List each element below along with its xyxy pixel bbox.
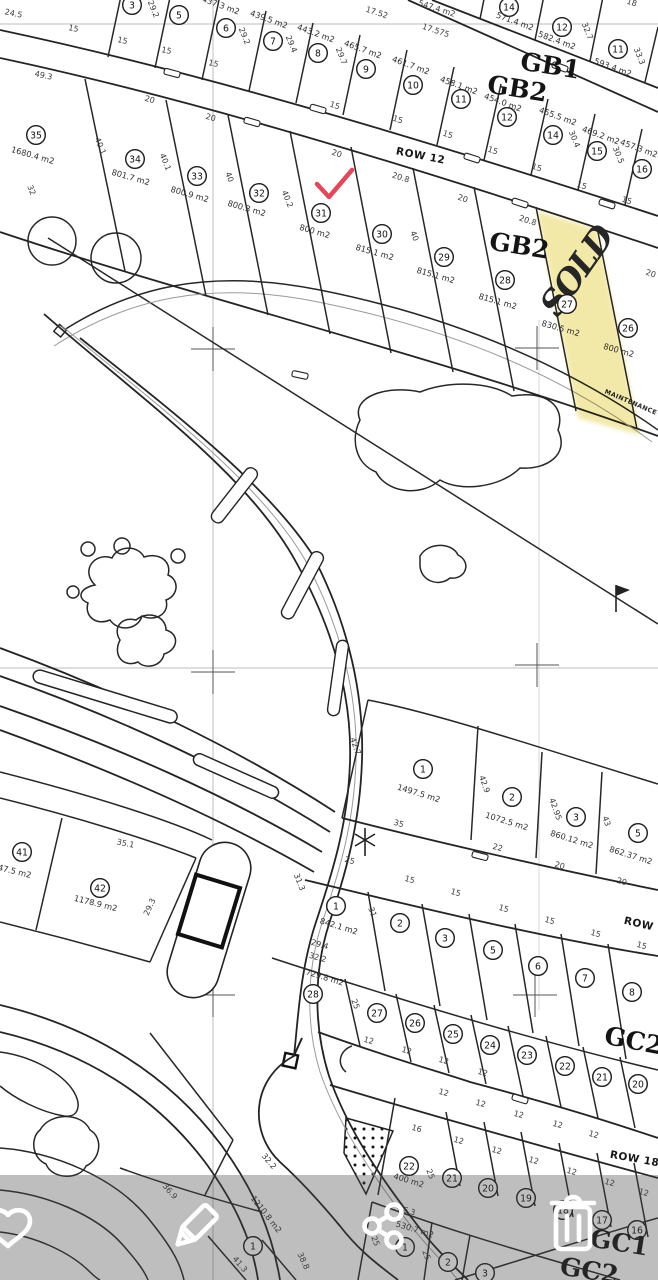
plot-number: 10 <box>407 80 419 91</box>
plot-number: 34 <box>129 154 141 165</box>
dimension-label: 43 <box>600 815 612 828</box>
dimension-label: 18 <box>626 0 638 8</box>
dimension-label: 12 <box>477 1067 489 1078</box>
cadastral-map: SOLD 24.5151515151515151515151549.320202… <box>0 0 658 1280</box>
dimension-label: 15 <box>450 887 462 898</box>
plot-number: 7 <box>582 973 588 984</box>
plot-number: 5 <box>176 10 182 21</box>
plot-area: 815.1 m2 <box>355 242 395 262</box>
dimension-label: 32 <box>25 184 37 197</box>
tree-outline <box>91 233 141 283</box>
dimension-label: 12 <box>438 1055 450 1066</box>
lake-outline <box>355 384 561 491</box>
dimension-label: 12 <box>588 1129 600 1140</box>
plot-number: 28 <box>307 989 319 1000</box>
dimension-label: 30.4 <box>567 129 582 149</box>
power-pole-icon <box>355 828 375 856</box>
plot-number: 8 <box>629 987 635 998</box>
dimension-label: 15 <box>329 100 341 112</box>
plot-number: 9 <box>363 64 369 75</box>
plot-number: 8 <box>315 48 321 59</box>
plot-number: 16 <box>636 164 648 175</box>
plot-number: 15 <box>591 146 603 157</box>
plot-number: 22 <box>559 1061 571 1072</box>
dimension-label: 12 <box>401 1045 413 1056</box>
dimension-label: 12 <box>552 1119 564 1130</box>
toolbar-overlay <box>0 1175 658 1280</box>
plot-number: 35 <box>30 130 42 141</box>
dimension-label: 20 <box>144 94 156 105</box>
dimension-label: 49.3 <box>34 69 53 82</box>
plot-number: 24 <box>484 1040 496 1051</box>
survey-grid <box>0 0 658 1280</box>
block-label: GC2 <box>602 1021 658 1061</box>
dimension-label: 15 <box>590 928 602 939</box>
red-checkmark <box>317 170 352 197</box>
plot-area: 455.5 m2 <box>538 105 578 128</box>
dimension-label: 17.575 <box>421 22 450 39</box>
dimension-label: 15 <box>544 915 556 926</box>
plot-number: 42 <box>94 883 106 894</box>
dimension-label: 40 <box>223 171 235 184</box>
plot-area: 800.9 m2 <box>170 184 210 204</box>
dimension-label: 29.4 <box>284 34 299 54</box>
plot-number: 30 <box>376 229 388 240</box>
plot-area: 862.37 m2 <box>608 844 653 867</box>
plot-number: 25 <box>447 1029 459 1040</box>
plot-number: 33 <box>191 171 203 182</box>
dimension-label: 12 <box>513 1109 525 1120</box>
dimension-label: 20 <box>645 268 657 280</box>
plot-boundaries <box>0 0 658 1280</box>
dimension-label: 15 <box>442 129 454 141</box>
dimension-label: 15 <box>498 903 510 914</box>
plot-number: 1 <box>333 901 339 912</box>
dimension-label: 22 <box>492 842 504 853</box>
plot-number: 5 <box>490 945 496 956</box>
dimension-label: 20 <box>205 112 217 123</box>
plot-number: 3 <box>442 933 448 944</box>
dimension-label: 15 <box>392 114 404 126</box>
plot-number: 28 <box>499 275 511 286</box>
plot-area: 1497.5 m2 <box>396 782 441 805</box>
dimension-label: 12 <box>453 1135 465 1146</box>
plot-area: 437.3 m2 <box>201 0 241 17</box>
lamp-post-icon <box>283 1038 302 1068</box>
dimension-label: 42.9 <box>477 774 492 794</box>
plot-area: 800 m2 <box>298 222 331 240</box>
plot-number: 2 <box>509 792 515 803</box>
plot-number: 26 <box>409 1018 421 1029</box>
plot-number: 7 <box>270 36 276 47</box>
plot-number: 20 <box>632 1079 644 1090</box>
plot-number: 23 <box>521 1050 533 1061</box>
plot-number: 14 <box>547 130 559 141</box>
plot-number: 2 <box>397 918 403 929</box>
dimension-label: 15 <box>404 874 416 885</box>
dimension-label: 40.1 <box>93 136 108 156</box>
plot-area: 457.3 m2 <box>619 137 658 160</box>
dimension-label: 35.1 <box>116 837 135 850</box>
dimension-label: 12 <box>438 1087 450 1098</box>
plot-area: 860.12 m2 <box>549 828 594 851</box>
plot-number: 29 <box>438 252 450 263</box>
plot-number: 26 <box>622 323 634 334</box>
photo-annotation-viewer: SOLD 24.5151515151515151515151549.320202… <box>0 0 658 1280</box>
plot-number: 3 <box>129 0 135 11</box>
plot-number: 12 <box>556 22 568 33</box>
dimension-label: 29.3 <box>142 897 158 917</box>
plot-number: 6 <box>535 961 541 972</box>
plot-number: 11 <box>455 94 467 105</box>
dimension-label: 29.2 <box>146 0 161 19</box>
dimension-label: 20 <box>616 876 628 887</box>
dimension-label: 29.2 <box>237 26 252 46</box>
plot-number: 27 <box>371 1008 383 1019</box>
plot-number: 3 <box>573 812 579 823</box>
map-labels: 24.5151515151515151515151549.32020202020… <box>0 0 658 1280</box>
plot-number: 41 <box>16 847 28 858</box>
dimension-label: 35 <box>393 818 405 829</box>
plot-area: 1680.4 m2 <box>10 144 55 166</box>
dimension-label: 32.2 <box>260 1152 278 1171</box>
dimension-label: 29.7 <box>334 46 349 66</box>
plot-area: 593.4 m2 <box>593 56 633 79</box>
dimension-label: 40.2 <box>280 189 295 209</box>
pond-outline <box>420 545 466 582</box>
plot-area: 47.5 m2 <box>0 862 32 880</box>
plot-number: 21 <box>596 1072 608 1083</box>
dimension-label: 20 <box>457 193 469 205</box>
roads <box>0 0 658 1280</box>
dimension-label: 15 <box>68 23 80 34</box>
dimension-label: 20.8 <box>391 171 411 185</box>
dimension-label: 40 <box>408 230 420 243</box>
dimension-label: 16 <box>411 1123 423 1134</box>
dimension-label: 12 <box>475 1098 487 1109</box>
road-label: ROW 12 <box>395 145 446 166</box>
dimension-label: 25 <box>344 855 356 866</box>
dimension-label: 12 <box>363 1035 375 1046</box>
dimension-label: 20 <box>331 148 343 160</box>
plot-number: 27 <box>561 299 573 310</box>
dimension-label: 31 <box>366 906 378 919</box>
dimension-label: 42.95 <box>547 797 563 822</box>
dimension-label: 15 <box>161 45 173 56</box>
bush-cluster <box>67 538 185 666</box>
plot-area: 465.7 m2 <box>343 38 383 61</box>
road-median <box>192 752 281 800</box>
plot-area: 439.5 m2 <box>249 8 289 31</box>
dimension-label: 31.3 <box>292 872 307 892</box>
plot-area: 842.1 m2 <box>319 916 359 937</box>
plot-area: 1072.5 m2 <box>484 810 529 833</box>
dimension-label: 40.1 <box>158 152 173 172</box>
plot-number: 12 <box>501 112 513 123</box>
road-label: ROW <box>623 915 655 933</box>
dimension-label: 15 <box>208 58 220 69</box>
plot-number: 11 <box>612 44 624 55</box>
dimension-label: 17.52 <box>364 5 389 21</box>
plot-number: 1 <box>420 764 426 775</box>
plot-number: 22 <box>403 1161 415 1172</box>
plot-area: 443.2 m2 <box>296 22 336 45</box>
dimension-label: 29.4 <box>310 938 330 952</box>
dimension-label: 12 <box>528 1155 540 1166</box>
plot-number: 31 <box>315 208 327 219</box>
plot-number: 5 <box>635 828 641 839</box>
plot-area: 461.7 m2 <box>391 54 431 77</box>
dimension-label: 15 <box>487 145 499 157</box>
plot-number: 32 <box>253 188 265 199</box>
dimension-label: 15 <box>117 35 129 46</box>
dimension-label: 20.8 <box>518 214 538 228</box>
dimension-label: 33.3 <box>632 46 647 66</box>
dimension-label: 24.5 <box>4 7 23 20</box>
dimension-label: 15 <box>636 940 648 951</box>
plot-area: 801.7 m2 <box>111 167 151 187</box>
dimension-label: 32.2 <box>308 951 328 965</box>
dimension-label: 12 <box>491 1145 503 1156</box>
dimension-label: 30.5 <box>611 145 626 165</box>
plot-number: 6 <box>223 23 229 34</box>
